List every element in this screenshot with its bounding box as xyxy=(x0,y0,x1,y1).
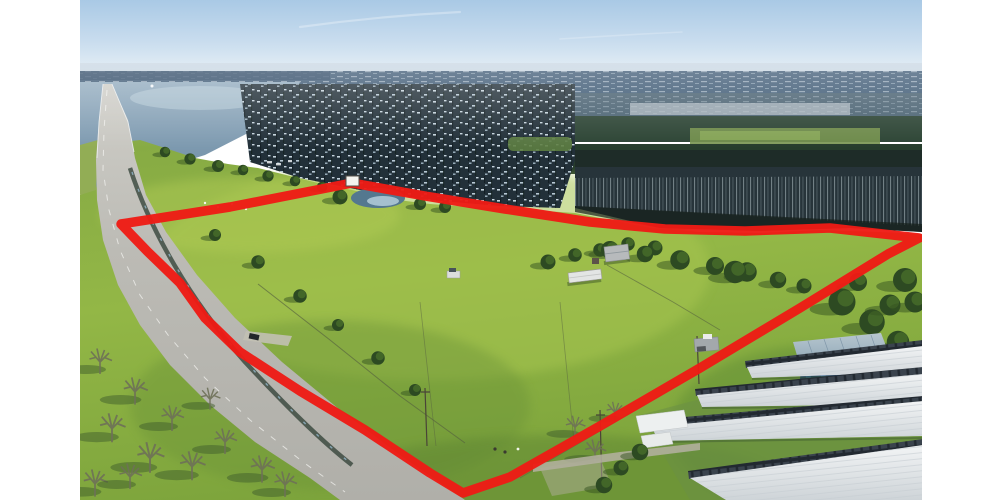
sky xyxy=(80,0,922,74)
aerial-photo xyxy=(0,0,1000,500)
farm-house xyxy=(602,244,630,265)
screenshot-root xyxy=(0,0,1000,500)
boundary-marker-sign xyxy=(346,176,359,186)
shed xyxy=(694,337,719,352)
atmospheric-haze xyxy=(80,63,922,148)
truck xyxy=(703,334,712,339)
small-barn xyxy=(592,258,599,264)
flooded-timber-right xyxy=(575,150,922,232)
